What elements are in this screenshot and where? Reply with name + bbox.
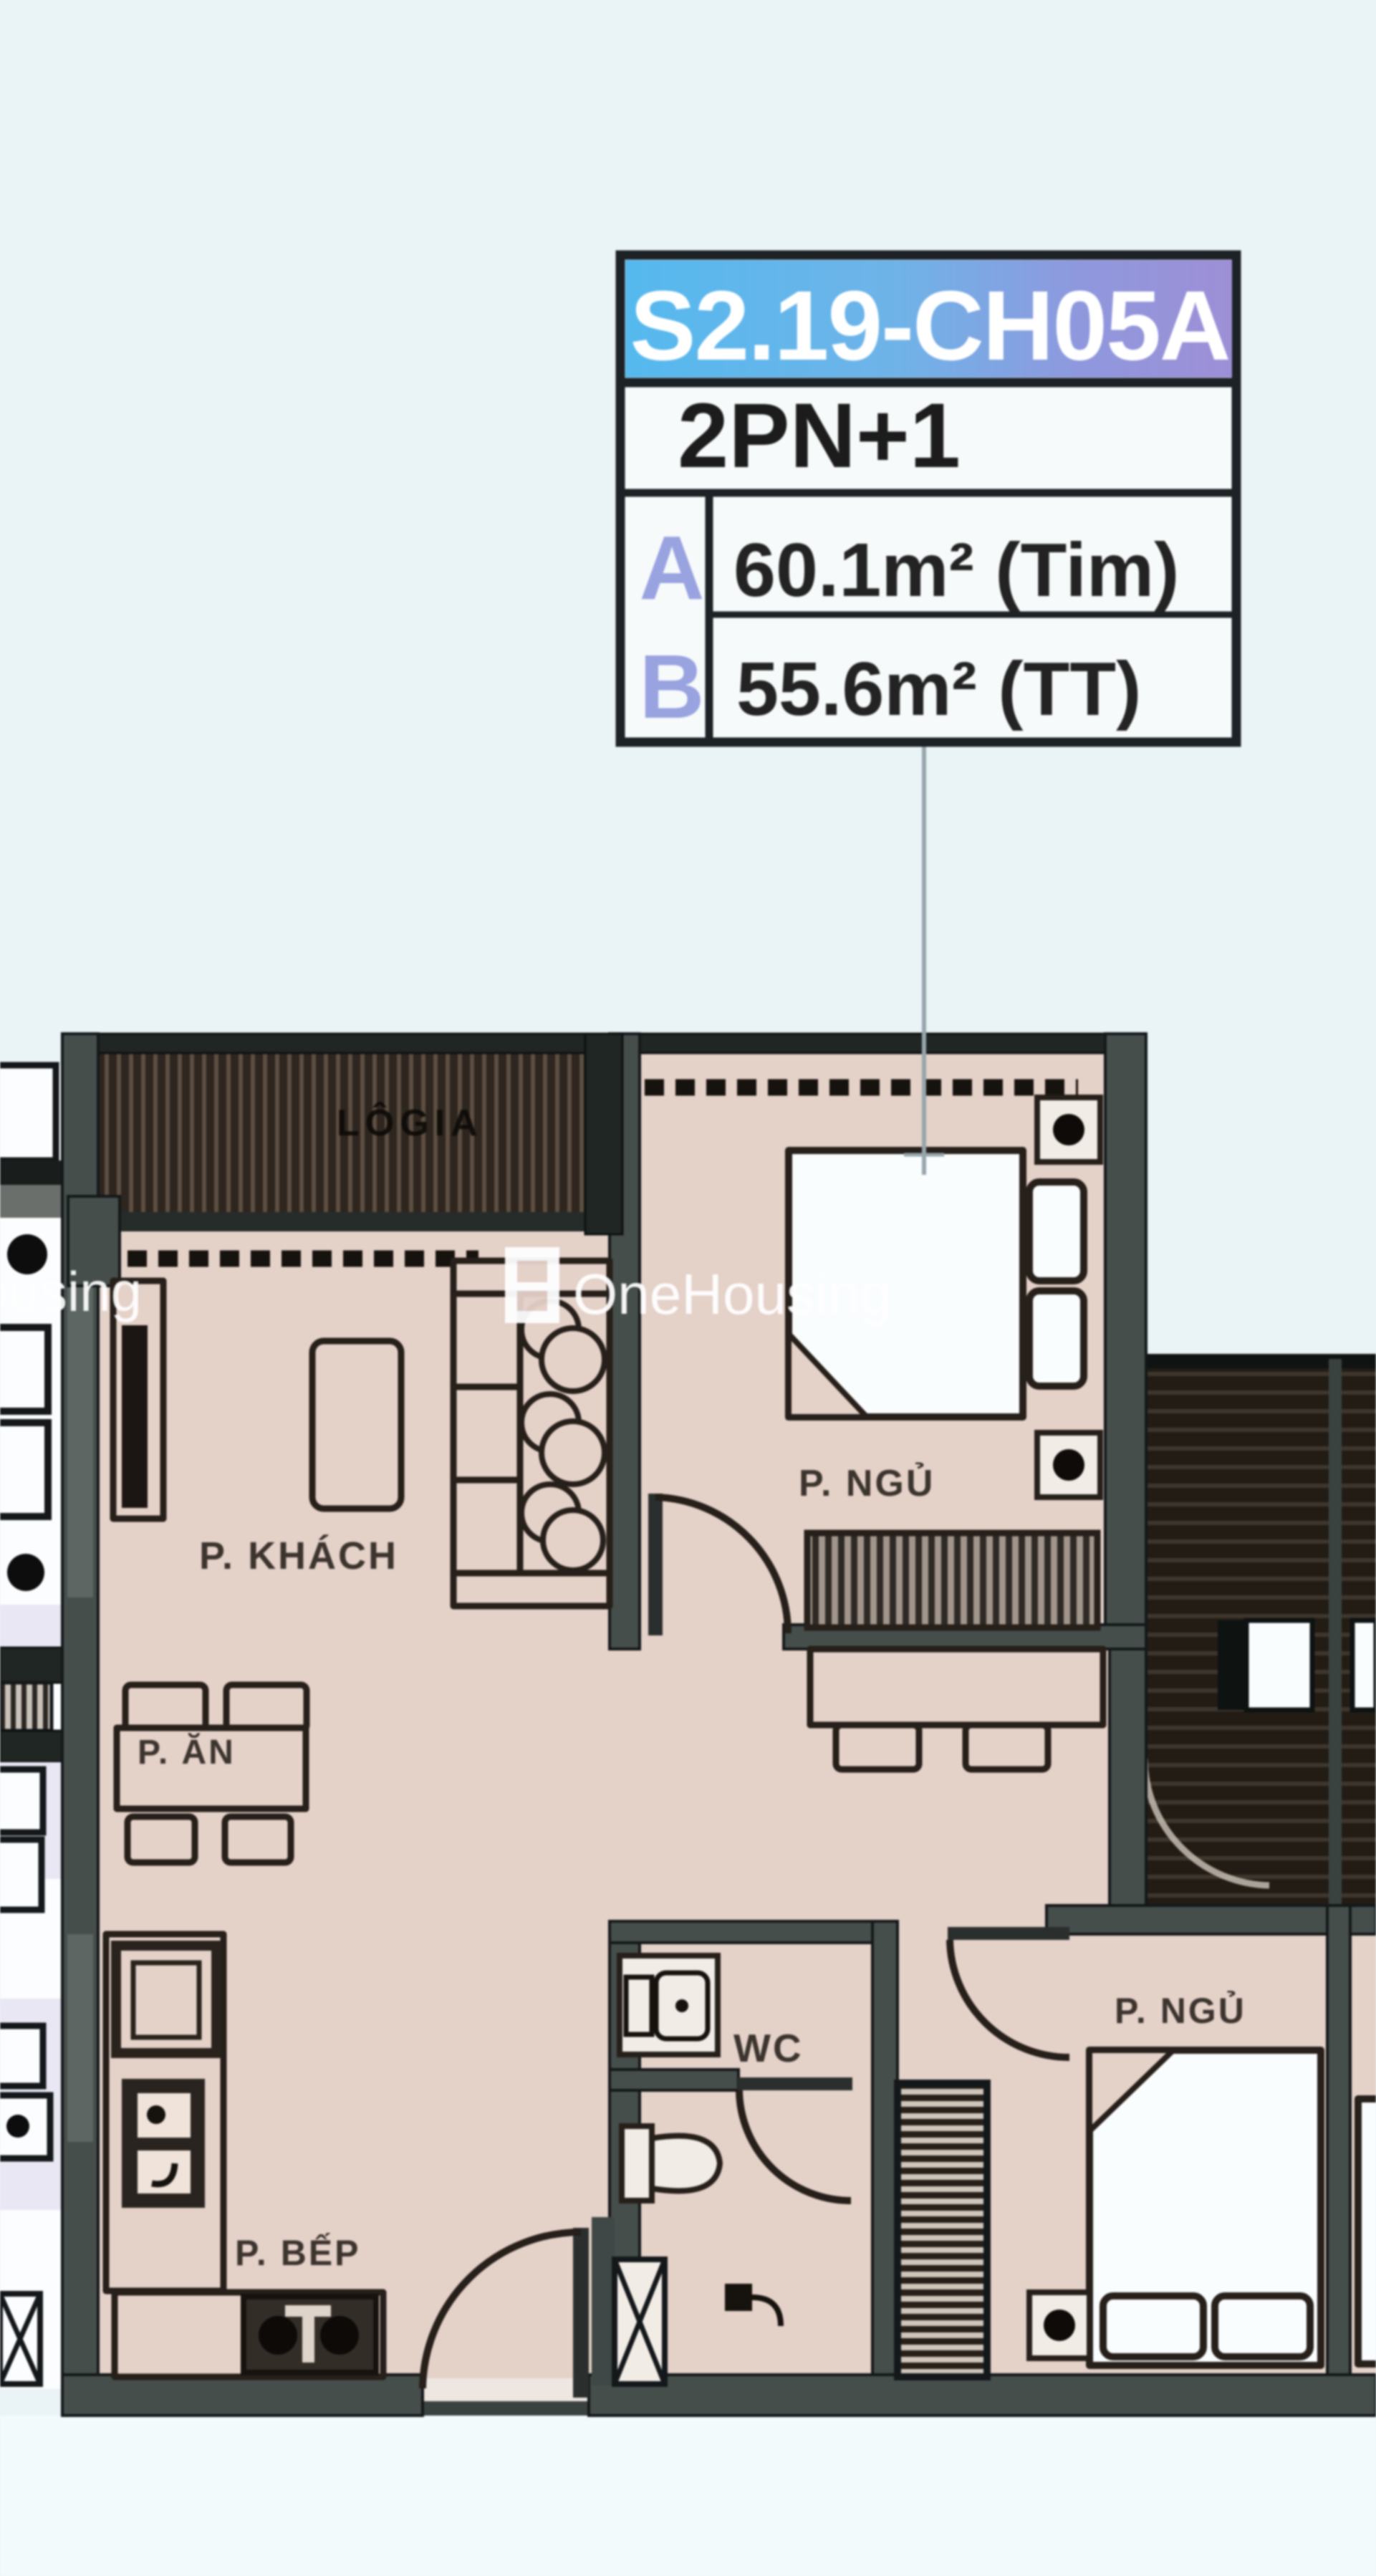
svg-text:60.1m² (Tim): 60.1m² (Tim) <box>733 528 1179 612</box>
svg-text:P. NGỦ: P. NGỦ <box>1115 1990 1246 2031</box>
svg-text:2PN+1: 2PN+1 <box>678 385 961 487</box>
svg-text:P. KHÁCH: P. KHÁCH <box>199 1534 398 1577</box>
svg-text:P. ĂN: P. ĂN <box>138 1733 236 1772</box>
svg-text:Housing: Housing <box>0 1260 142 1323</box>
svg-text:LÔGIA: LÔGIA <box>337 1102 483 1144</box>
svg-text:S2.19-CH05A: S2.19-CH05A <box>630 271 1229 381</box>
svg-text:P. BẾP: P. BẾP <box>235 2233 361 2273</box>
svg-text:P. NGỦ: P. NGỦ <box>799 1462 935 1504</box>
svg-text:B: B <box>640 636 705 737</box>
svg-text:WC: WC <box>733 2026 804 2070</box>
svg-text:OneHousing: OneHousing <box>573 1262 892 1326</box>
svg-text:55.6m² (TT): 55.6m² (TT) <box>736 647 1141 731</box>
svg-text:A: A <box>640 517 705 618</box>
